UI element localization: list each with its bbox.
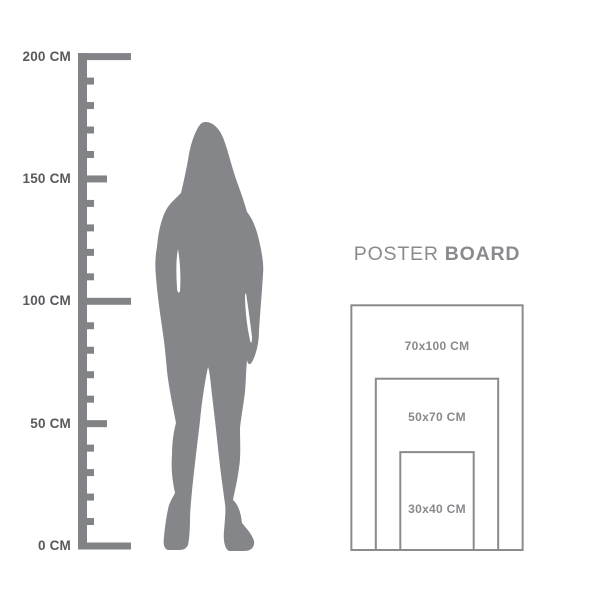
ruler-tick-minor [78,127,94,134]
ruler-label-150cm: 150 CM [0,170,71,188]
ruler-label-50cm: 50 CM [0,415,71,433]
poster-rect-50x70 [376,379,498,550]
standing-woman-silhouette [155,122,263,551]
ruler-tick-minor [78,224,94,231]
ruler-tick-minor [78,200,94,207]
ruler-label-0cm: 0 CM [0,537,71,555]
poster-size-label-70x100: 70x100 CM [405,339,470,353]
ruler-tick-major [78,53,131,60]
poster-size-guide-infographic: 200 CM150 CM100 CM50 CM0 CM POSTERBOARD … [0,0,600,600]
ruler-tick-minor [78,151,94,158]
ruler-tick-major [78,298,131,305]
height-ruler [78,53,131,549]
poster-board-title-regular: POSTER [354,243,439,265]
ruler-tick-medium [78,420,107,427]
ruler-tick-minor [78,445,94,452]
ruler-tick-minor [78,273,94,280]
ruler-tick-minor [78,494,94,501]
ruler-tick-major [78,543,131,550]
ruler-tick-minor [78,322,94,329]
ruler-tick-minor [78,469,94,476]
ruler-tick-minor [78,249,94,256]
poster-rect-30x40 [400,452,473,550]
poster-size-label-30x40: 30x40 CM [408,502,466,516]
poster-size-label-50x70: 50x70 CM [408,410,466,424]
ruler-tick-minor [78,347,94,354]
scene-graphics [0,0,600,600]
ruler-tick-minor [78,102,94,109]
ruler-tick-minor [78,518,94,525]
ruler-tick-minor [78,396,94,403]
poster-board-title: POSTERBOARD [354,243,520,266]
ruler-tick-minor [78,371,94,378]
ruler-label-100cm: 100 CM [0,292,71,310]
ruler-tick-minor [78,78,94,85]
poster-board-title-bold: BOARD [445,243,521,265]
ruler-tick-medium [78,175,107,182]
ruler-label-200cm: 200 CM [0,48,71,66]
